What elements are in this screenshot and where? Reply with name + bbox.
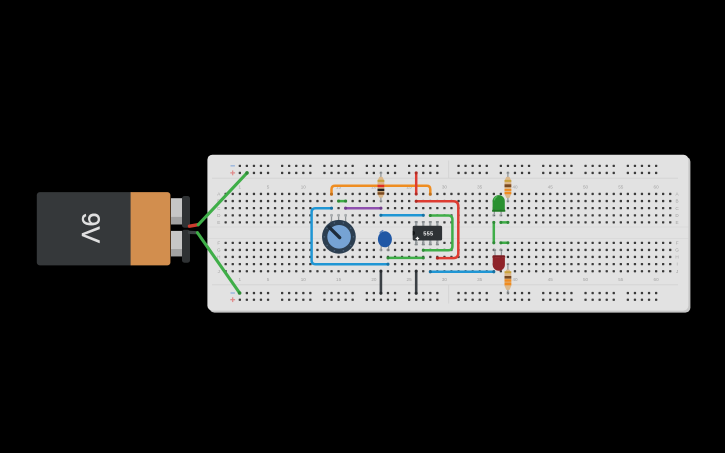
svg-text:30: 30 — [442, 185, 448, 190]
svg-text:1: 1 — [239, 185, 242, 190]
svg-text:H: H — [675, 255, 678, 260]
svg-text:55: 55 — [618, 277, 624, 282]
svg-text:10: 10 — [301, 185, 307, 190]
svg-text:50: 50 — [583, 277, 589, 282]
svg-text:B: B — [676, 199, 679, 204]
svg-text:45: 45 — [548, 277, 554, 282]
svg-text:E: E — [676, 220, 679, 225]
svg-text:40: 40 — [512, 277, 518, 282]
svg-text:G: G — [675, 248, 679, 253]
svg-text:5: 5 — [267, 185, 270, 190]
svg-text:G: G — [217, 248, 221, 253]
svg-text:60: 60 — [654, 277, 660, 282]
svg-text:30: 30 — [442, 277, 448, 282]
svg-text:35: 35 — [477, 185, 483, 190]
svg-text:45: 45 — [548, 185, 554, 190]
svg-text:H: H — [217, 255, 220, 260]
svg-text:I: I — [676, 262, 677, 267]
svg-text:60: 60 — [654, 185, 660, 190]
svg-text:10: 10 — [301, 277, 307, 282]
svg-text:50: 50 — [583, 185, 589, 190]
svg-text:F: F — [217, 240, 220, 245]
svg-text:40: 40 — [512, 185, 518, 190]
svg-text:55: 55 — [618, 185, 624, 190]
svg-text:E: E — [217, 220, 220, 225]
svg-text:35: 35 — [477, 277, 483, 282]
svg-text:J: J — [676, 269, 678, 274]
svg-text:J: J — [218, 269, 220, 274]
svg-text:555: 555 — [423, 231, 433, 237]
svg-text:25: 25 — [407, 277, 413, 282]
svg-text:5: 5 — [267, 277, 270, 282]
svg-text:1: 1 — [239, 277, 242, 282]
svg-text:F: F — [676, 240, 679, 245]
svg-text:9V: 9V — [76, 213, 104, 244]
svg-text:15: 15 — [336, 277, 342, 282]
svg-text:20: 20 — [371, 277, 377, 282]
